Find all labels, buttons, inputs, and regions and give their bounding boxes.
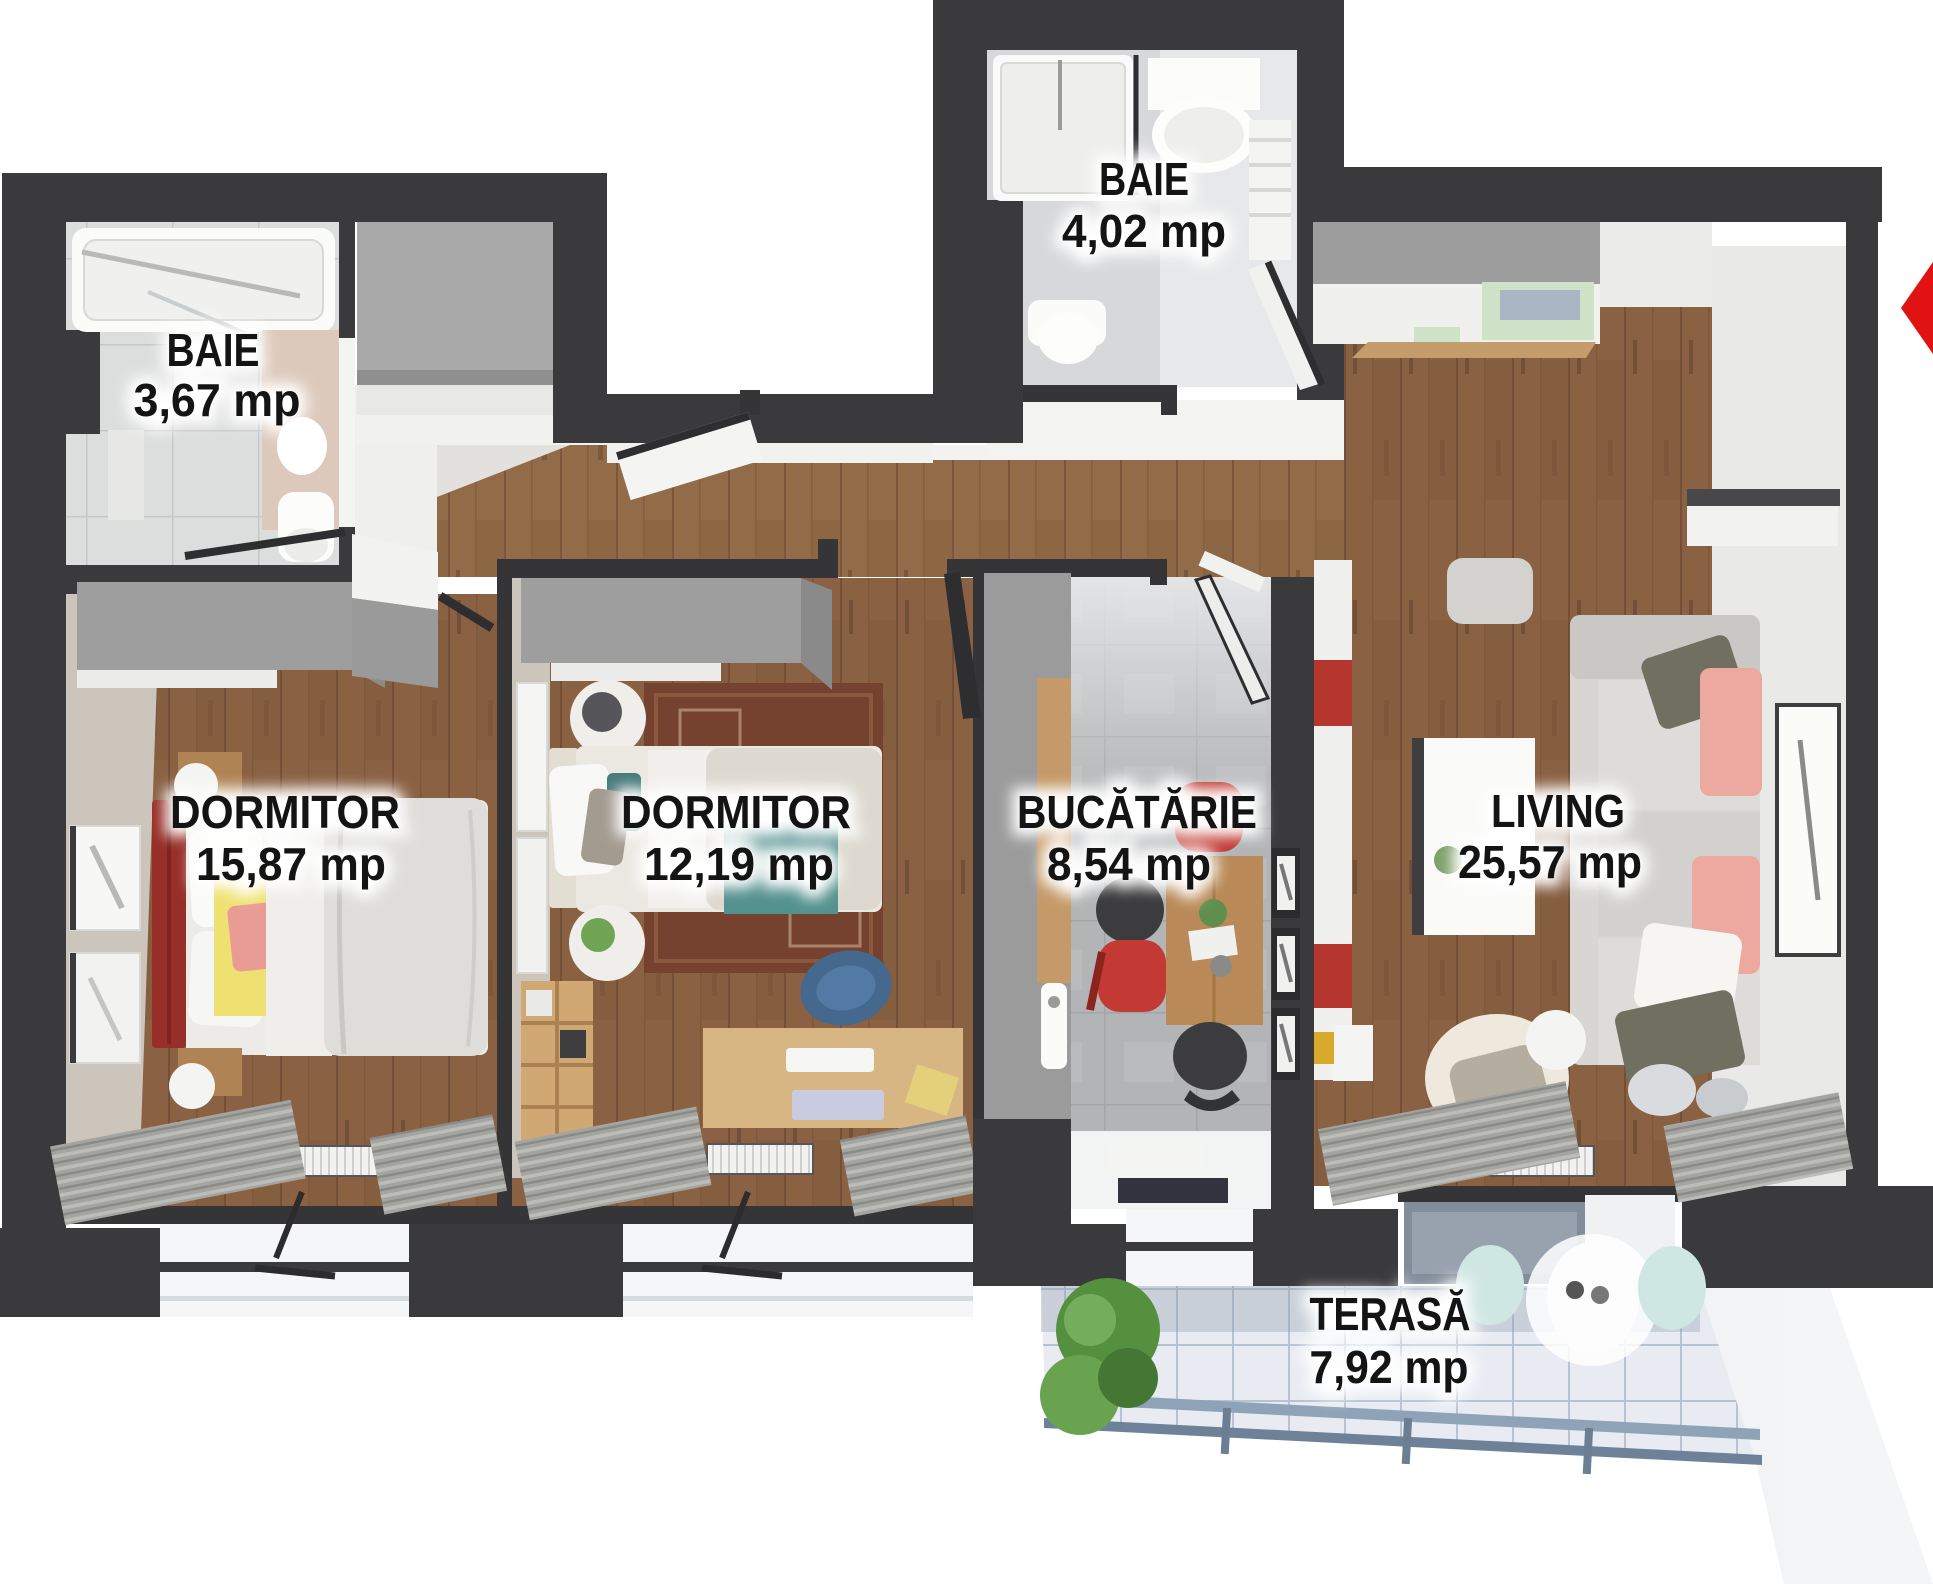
svg-text:DORMITOR: DORMITOR [621, 786, 851, 838]
svg-text:8,54 mp: 8,54 mp [1047, 838, 1211, 890]
svg-text:25,57 mp: 25,57 mp [1458, 836, 1642, 888]
svg-text:12,19 mp: 12,19 mp [644, 838, 834, 890]
svg-text:TERASĂ: TERASĂ [1310, 1288, 1471, 1340]
svg-text:15,87 mp: 15,87 mp [196, 838, 386, 890]
svg-text:BAIE: BAIE [167, 324, 260, 376]
svg-text:BUCĂTĂRIE: BUCĂTĂRIE [1017, 786, 1257, 838]
svg-text:7,92 mp: 7,92 mp [1310, 1341, 1469, 1393]
svg-text:4,02 mp: 4,02 mp [1062, 205, 1226, 257]
svg-text:DORMITOR: DORMITOR [170, 786, 400, 838]
svg-text:LIVING: LIVING [1491, 785, 1625, 837]
svg-text:BAIE: BAIE [1099, 153, 1189, 205]
svg-text:3,67 mp: 3,67 mp [134, 374, 301, 426]
